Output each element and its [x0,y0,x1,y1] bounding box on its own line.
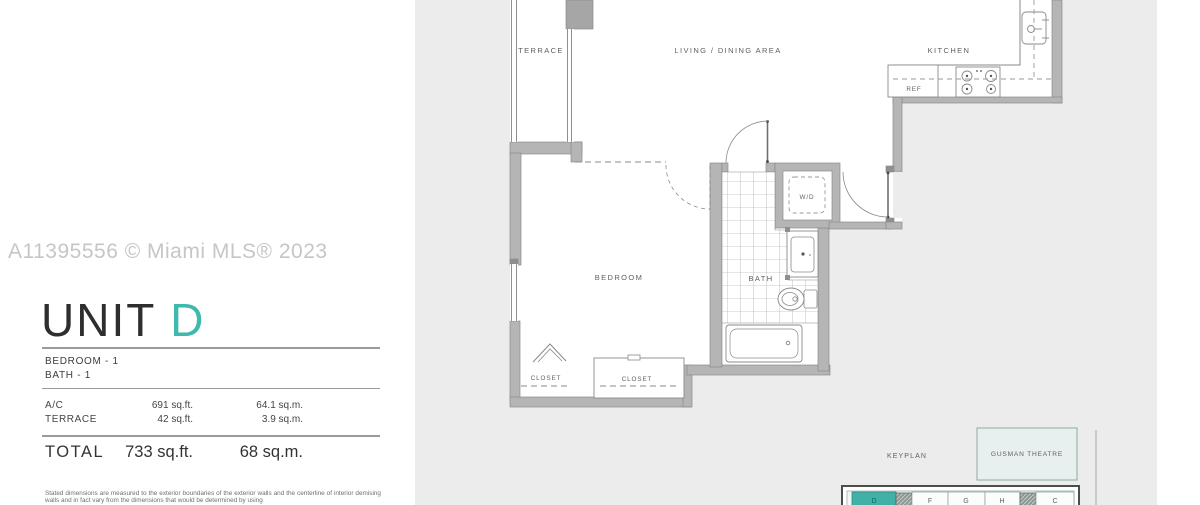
bath-label: BATH [748,274,773,283]
area-row-sqft: 691 sq.ft. [90,400,193,411]
kitchen-sink [1022,12,1049,44]
stove [956,67,1000,97]
unit-title-letter: D [170,294,205,346]
unit-title: UNIT D [41,293,206,347]
living-dining-label: LIVING / DINING AREA [674,46,781,55]
area-row-sqft: 42 sq.ft. [90,414,193,425]
divider-line [42,388,380,389]
keyplan-letter-f: F [928,498,932,505]
divider-line [42,347,380,349]
dimensions-disclaimer: Stated dimensions are measured to the ex… [45,490,381,505]
toilet [778,288,817,310]
keyplan-core-1 [896,493,912,505]
wd-label: W/D [800,194,815,201]
keyplan-building-strip: D F G H C [842,486,1079,505]
area-row-label: A/C [45,400,63,411]
bedroom-label: BEDROOM [595,273,644,282]
bedroom-count: BEDROOM - 1 [45,356,119,367]
mls-floorplan-photo: W/D [0,0,1200,505]
total-sqft: 733 sq.ft. [90,443,193,462]
area-row-sqm: 64.1 sq.m. [200,400,303,411]
keyplan-label: KEYPLAN [887,453,927,460]
keyplan-letter-c: C [1052,498,1057,505]
divider-line [42,435,380,437]
ref-label: REF [906,86,921,93]
wall-column [566,0,593,29]
keyplan-letter-d: D [871,498,876,505]
closet1-label: CLOSET [531,375,562,382]
gusman-theatre-label: GUSMAN THEATRE [991,451,1063,458]
terrace-label: TERRACE [518,46,564,55]
entry-opening [893,172,902,218]
closet2-label: CLOSET [622,376,653,383]
bathtub [726,325,802,362]
bath-count: BATH - 1 [45,370,91,381]
unit-info-panel: A11395556 © Miami MLS® 2023 UNIT D BEDRO… [0,0,415,505]
kitchen-label: KITCHEN [928,46,971,55]
total-sqm: 68 sq.m. [200,443,303,462]
area-row-sqm: 3.9 sq.m. [200,414,303,425]
unit-title-prefix: UNIT [41,294,170,346]
washer-dryer: W/D [783,171,832,220]
keyplan-letter-g: G [963,498,968,505]
keyplan-letter-h: H [999,498,1004,505]
mls-watermark: A11395556 © Miami MLS® 2023 [8,240,328,264]
keyplan-core-2 [1020,493,1036,505]
